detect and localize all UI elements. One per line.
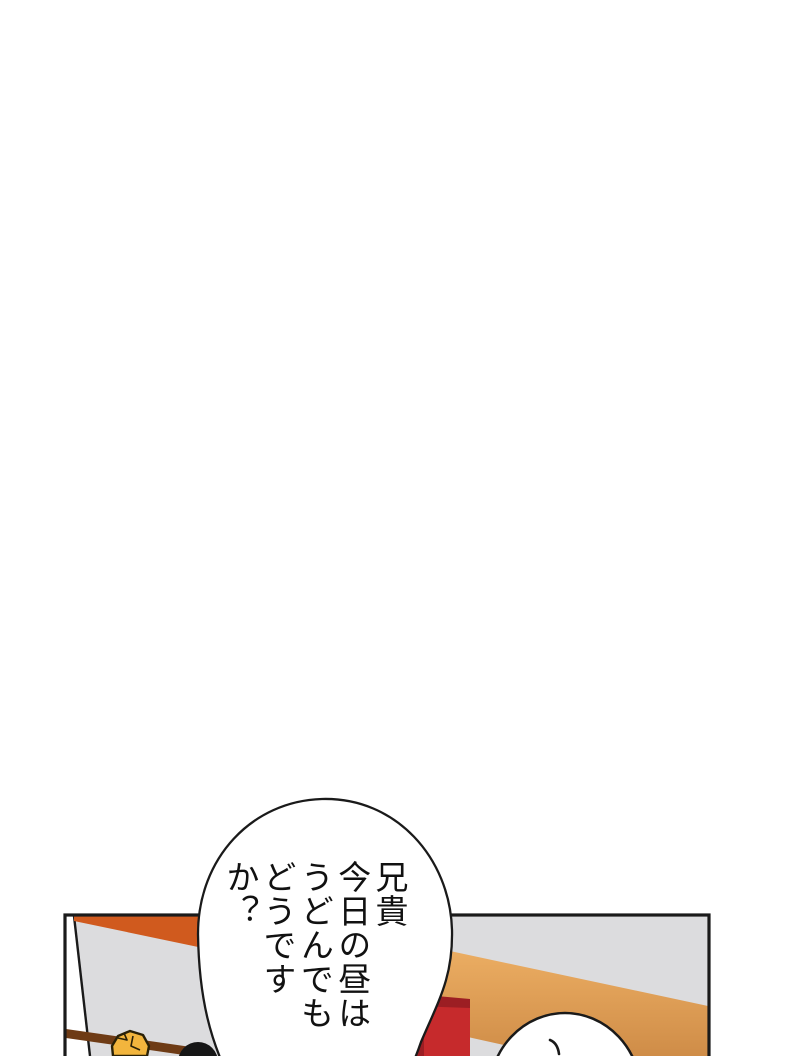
- speech-text: 兄貴 今日の昼は うどんでも どうですか？: [250, 860, 408, 1056]
- manga-page: 兄貴 今日の昼は うどんでも どうですか？: [0, 0, 800, 1056]
